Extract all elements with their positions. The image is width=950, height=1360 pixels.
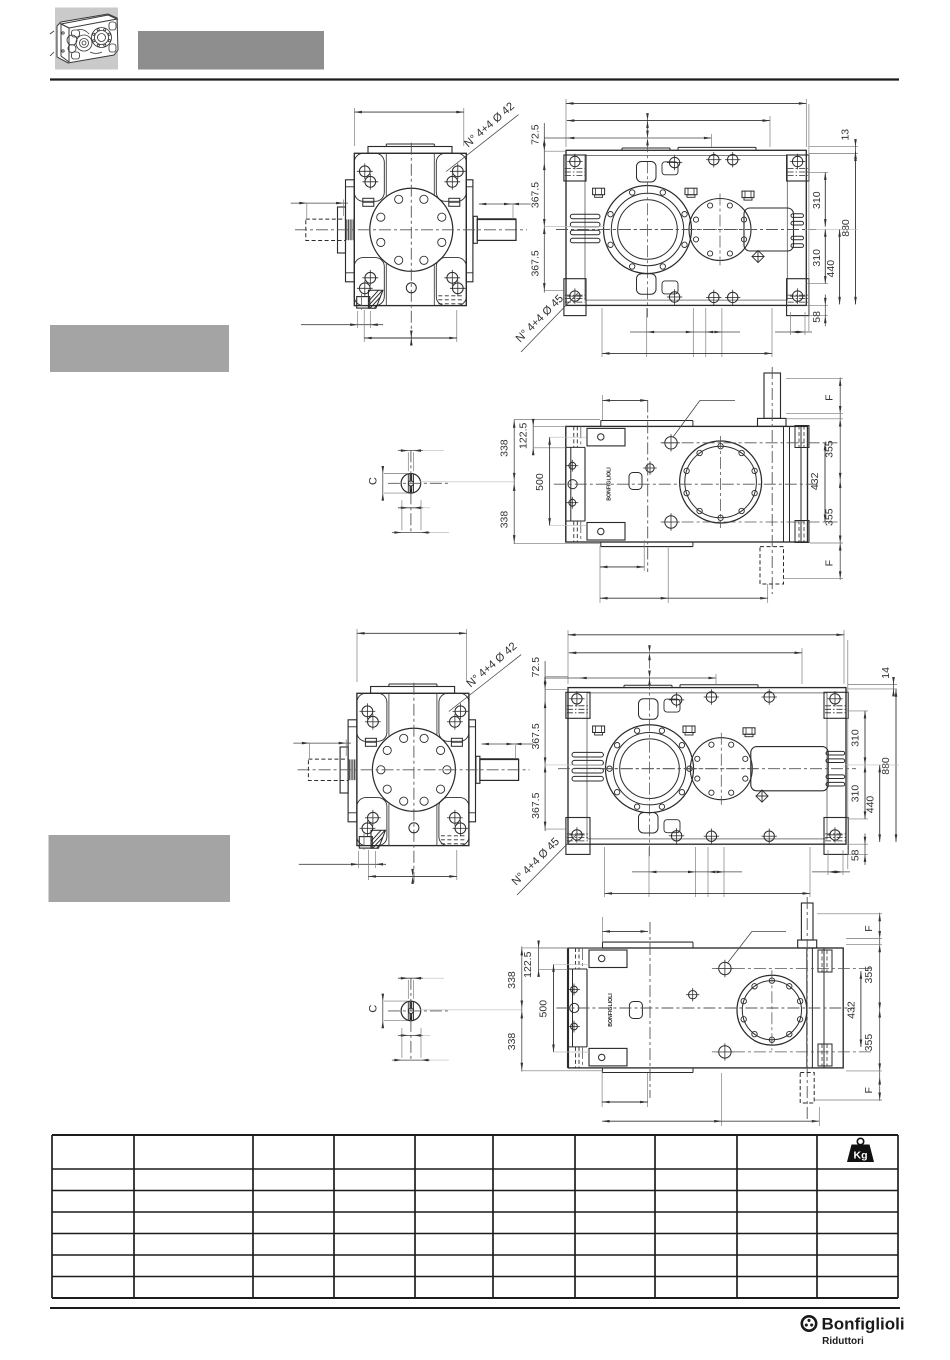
svg-text:13: 13 bbox=[840, 129, 852, 141]
svg-text:Riduttori: Riduttori bbox=[822, 1336, 864, 1347]
svg-text:355: 355 bbox=[863, 966, 875, 984]
svg-text:338: 338 bbox=[506, 971, 518, 989]
svg-text:C: C bbox=[367, 1005, 379, 1013]
svg-text:58: 58 bbox=[850, 849, 862, 861]
svg-text:BONFIGLIOLI: BONFIGLIOLI bbox=[608, 993, 614, 1027]
svg-text:N° 4+4 Ø 45: N° 4+4 Ø 45 bbox=[510, 836, 562, 888]
svg-text:338: 338 bbox=[506, 1033, 518, 1051]
svg-text:58: 58 bbox=[811, 311, 823, 323]
svg-text:367.5: 367.5 bbox=[530, 792, 542, 818]
svg-text:880: 880 bbox=[840, 219, 852, 237]
svg-text:F: F bbox=[863, 925, 875, 931]
svg-text:338: 338 bbox=[499, 511, 511, 529]
svg-text:Bonfiglioli: Bonfiglioli bbox=[822, 1315, 905, 1334]
svg-text:C: C bbox=[367, 477, 379, 485]
svg-text:310: 310 bbox=[850, 729, 862, 747]
svg-text:338: 338 bbox=[499, 439, 511, 457]
svg-text:N° 4+4 Ø 42: N° 4+4 Ø 42 bbox=[465, 640, 520, 690]
svg-text:122.5: 122.5 bbox=[522, 951, 534, 977]
svg-text:14: 14 bbox=[880, 667, 892, 679]
svg-text:440: 440 bbox=[825, 260, 837, 278]
svg-text:BONFIGLIOLI: BONFIGLIOLI bbox=[607, 467, 613, 501]
svg-text:Kg: Kg bbox=[854, 1150, 868, 1162]
svg-text:F: F bbox=[863, 1087, 875, 1093]
svg-text:432: 432 bbox=[809, 472, 821, 490]
svg-text:355: 355 bbox=[863, 1034, 875, 1052]
svg-text:72.5: 72.5 bbox=[529, 124, 541, 145]
svg-text:N° 4+4 Ø 42: N° 4+4 Ø 42 bbox=[462, 100, 517, 150]
svg-text:432: 432 bbox=[846, 1001, 858, 1019]
svg-text:500: 500 bbox=[534, 473, 546, 491]
svg-text:880: 880 bbox=[880, 757, 892, 775]
svg-text:440: 440 bbox=[865, 796, 877, 814]
svg-text:122.5: 122.5 bbox=[517, 423, 529, 449]
svg-text:F: F bbox=[823, 394, 835, 400]
svg-text:367.5: 367.5 bbox=[529, 250, 541, 276]
svg-text:310: 310 bbox=[811, 249, 823, 267]
svg-text:310: 310 bbox=[811, 191, 823, 209]
svg-text:367.5: 367.5 bbox=[529, 182, 541, 208]
svg-text:F: F bbox=[823, 560, 835, 566]
svg-text:367.5: 367.5 bbox=[530, 723, 542, 749]
svg-text:500: 500 bbox=[538, 1000, 550, 1018]
svg-text:N° 4+4 Ø 45: N° 4+4 Ø 45 bbox=[514, 293, 566, 345]
svg-text:310: 310 bbox=[850, 785, 862, 803]
svg-text:72.5: 72.5 bbox=[530, 657, 542, 678]
